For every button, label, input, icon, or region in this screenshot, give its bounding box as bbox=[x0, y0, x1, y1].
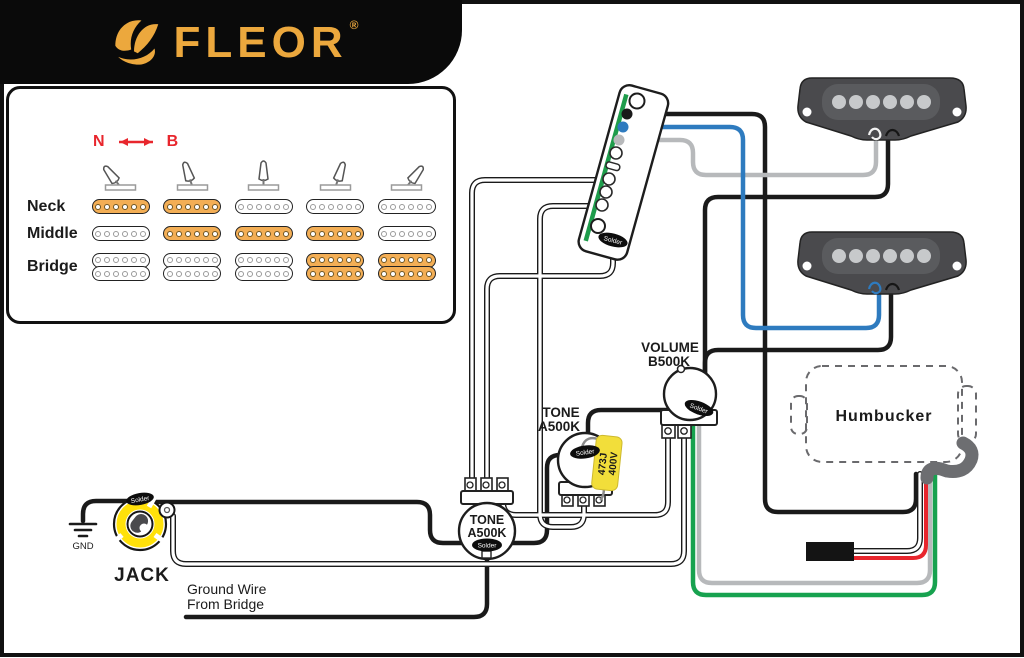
switch-lug-black bbox=[622, 109, 633, 120]
volume-label-line1: VOLUME bbox=[641, 340, 699, 355]
gnd-label: GND bbox=[72, 541, 93, 552]
legend-cell bbox=[85, 199, 157, 214]
wire-middle-pickup-ground bbox=[705, 288, 891, 398]
ground-note-line2: From Bridge bbox=[187, 596, 264, 612]
legend-cell bbox=[228, 253, 300, 281]
pickup-coil bbox=[235, 266, 293, 281]
tone1-label-line1: TONE bbox=[542, 405, 579, 420]
legend-cell bbox=[157, 199, 229, 214]
legend-row-middle: Middle bbox=[13, 220, 443, 247]
ground-symbol bbox=[70, 524, 96, 536]
pickup-coil bbox=[163, 199, 221, 214]
pickup-coil bbox=[378, 266, 436, 281]
pickup-coil bbox=[163, 266, 221, 281]
legend-cell bbox=[157, 226, 229, 241]
pickup-coil bbox=[163, 226, 221, 241]
pickup-coil bbox=[92, 266, 150, 281]
tone-pot-1: 473J 400V bbox=[558, 433, 623, 506]
tone2-label-line1: TONE bbox=[470, 513, 505, 527]
switch-lever-icon bbox=[85, 149, 156, 193]
row-label-neck: Neck bbox=[13, 198, 85, 216]
lever-cells bbox=[85, 149, 443, 193]
pickup-bridge bbox=[798, 78, 966, 140]
legend-table: Neck Middle Bridge bbox=[13, 149, 443, 287]
legend-cell bbox=[300, 199, 372, 214]
wire-humbucker-green bbox=[693, 412, 935, 595]
row-label-bridge: Bridge bbox=[13, 258, 85, 276]
legend-cell bbox=[228, 199, 300, 214]
switch-position-legend: N B Neck Middle Bridge bbox=[6, 86, 456, 324]
switch-lever-icon bbox=[228, 149, 299, 193]
legend-cell bbox=[85, 253, 157, 281]
pickup-middle bbox=[798, 232, 966, 294]
legend-cell bbox=[300, 226, 372, 241]
legend-cell bbox=[228, 226, 300, 241]
fleor-logo-icon bbox=[104, 14, 164, 70]
svg-text:473J 400V: 473J 400V bbox=[597, 450, 621, 477]
legend-cell bbox=[371, 253, 443, 281]
tone2-label-line2: A500K bbox=[468, 526, 507, 540]
pickup-coil bbox=[306, 199, 364, 214]
legend-cell bbox=[85, 226, 157, 241]
brand-name: FLEOR® bbox=[174, 19, 359, 65]
legend-cell bbox=[371, 226, 443, 241]
wire-middle-pickup-hot bbox=[623, 127, 879, 328]
nb-arrow-icon bbox=[112, 136, 160, 148]
wiring-diagram: Humbucker bbox=[0, 0, 1024, 658]
registered-mark: ® bbox=[350, 18, 359, 32]
legend-cell bbox=[300, 253, 372, 281]
pickup-coil bbox=[235, 226, 293, 241]
row-label-middle: Middle bbox=[13, 225, 85, 243]
pickup-coil bbox=[306, 226, 364, 241]
switch-lug-gray bbox=[614, 135, 625, 146]
tape-block bbox=[806, 542, 854, 561]
solder-label: Solder bbox=[478, 543, 498, 550]
switch-lever-icon bbox=[300, 149, 371, 193]
legend-cell bbox=[157, 253, 229, 281]
ground-note-line1: Ground Wire bbox=[187, 581, 267, 597]
pickup-coil bbox=[92, 226, 150, 241]
pickup-coil bbox=[235, 199, 293, 214]
pickup-coil bbox=[378, 199, 436, 214]
jack-label: JACK bbox=[114, 565, 170, 586]
tone1-label-line2: A500K bbox=[538, 419, 580, 434]
legend-row-neck: Neck bbox=[13, 193, 443, 220]
brand-banner: FLEOR® bbox=[0, 0, 462, 84]
switch-lug-blue bbox=[618, 122, 629, 133]
pickup-coil bbox=[306, 266, 364, 281]
capacitor: 473J 400V bbox=[591, 435, 623, 491]
pickup-coil bbox=[378, 226, 436, 241]
humbucker-cable bbox=[927, 443, 972, 478]
switch-lever-icon bbox=[371, 149, 442, 193]
lever-row bbox=[13, 149, 443, 193]
selector-switch bbox=[576, 83, 670, 262]
pickup-coil bbox=[92, 199, 150, 214]
legend-row-bridge: Bridge bbox=[13, 247, 443, 287]
humbucker-label: Humbucker bbox=[835, 408, 932, 425]
wire-jack-ground bbox=[152, 502, 476, 543]
legend-cell bbox=[371, 199, 443, 214]
switch-lever-icon bbox=[157, 149, 228, 193]
volume-label-line2: B500K bbox=[648, 354, 690, 369]
